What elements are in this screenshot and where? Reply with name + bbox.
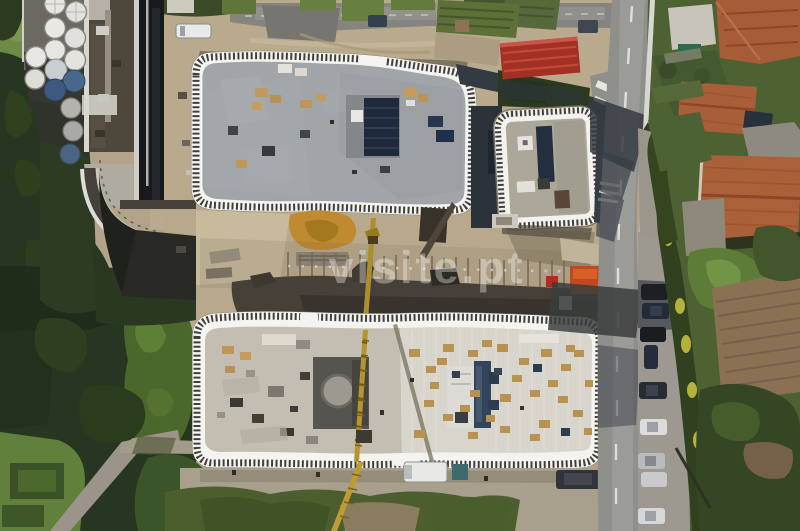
svg-text:visite.pt: visite.pt <box>328 242 525 293</box>
